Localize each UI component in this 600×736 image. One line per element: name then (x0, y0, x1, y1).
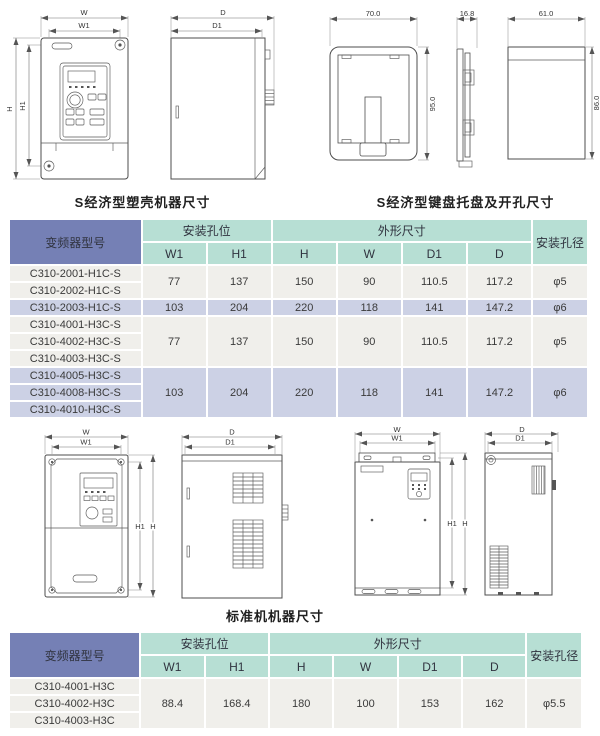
dim-label-h: H (150, 522, 155, 531)
s-side-view-drawing: D D1 (166, 6, 284, 188)
std-large-side-view-drawing: D D1 (476, 428, 600, 606)
dim-label-cutout-width: 61.0 (539, 9, 554, 18)
model-cell: C310-4001-H3C (10, 679, 139, 694)
dimension-value-cell: 100 (334, 679, 396, 728)
model-cell: C310-4003-H3C (10, 713, 139, 728)
model-cell: C310-2002-H1C-S (10, 283, 141, 298)
tray-front-drawing: 70.0 95.0 (316, 6, 442, 182)
dimension-value-cell: 110.5 (403, 266, 466, 298)
dimension-value-cell: 168.4 (206, 679, 268, 728)
header-row-1: 变频器型号安装孔位外形尺寸安装孔径 (10, 633, 581, 654)
dimension-value-cell: 141 (403, 368, 466, 417)
model-cell: C310-4008-H3C-S (10, 385, 141, 400)
model-cell: C310-2001-H1C-S (10, 266, 141, 281)
dimension-value-cell: 118 (338, 300, 401, 315)
dim-label-d: D (220, 8, 226, 17)
header-sub-col-d1: D1 (399, 656, 461, 677)
model-cell: C310-4005-H3C-S (10, 368, 141, 383)
dimension-value-cell: φ5.5 (527, 679, 581, 728)
caption-s-plastic-machine: S经济型塑壳机器尺寸 (35, 192, 250, 211)
header-sub-col-h: H (270, 656, 332, 677)
header-sub-col-w: W (338, 243, 401, 264)
header-sub-col-d: D (463, 656, 525, 677)
dimension-value-cell: 147.2 (468, 368, 531, 417)
dim-label-d1: D1 (515, 434, 525, 443)
header-row-1: 变频器型号安装孔位外形尺寸安装孔径 (10, 220, 587, 241)
dimension-value-cell: 204 (208, 368, 271, 417)
header-model: 变频器型号 (10, 220, 141, 264)
dim-label-tray-width: 70.0 (366, 9, 381, 18)
dim-label-w1: W1 (391, 434, 402, 443)
tray-side-drawing: 16.8 (446, 6, 494, 182)
potentiometer-knob (282, 505, 288, 520)
table-row: C310-4001-H3C88.4168.4180100153162φ5.5 (10, 679, 581, 694)
dim-label-d1: D1 (212, 21, 222, 30)
dim-label-h1: H1 (135, 522, 145, 531)
model-cell: C310-4003-H3C-S (10, 351, 141, 366)
s-front-view-drawing: W W1 H H1 (6, 6, 138, 188)
model-cell: C310-4002-H3C (10, 696, 139, 711)
dimension-value-cell: φ5 (533, 317, 587, 366)
s-series-dimensions-table: 变频器型号安装孔位外形尺寸安装孔径W1H1HWD1DC310-2001-H1C-… (8, 218, 589, 419)
tray-cutout-drawing: 61.0 86.0 (498, 6, 600, 182)
dim-label-tray-depth: 16.8 (460, 9, 475, 18)
header-hole-diameter: 安装孔径 (533, 220, 587, 264)
caption-s-keypad-tray: S经济型键盘托盘及开孔尺寸 (348, 192, 583, 211)
table-row: C310-2001-H1C-S7713715090110.5117.2φ5 (10, 266, 587, 281)
dimension-value-cell: 137 (208, 317, 271, 366)
table-row: C310-4005-H3C-S103204220118141147.2φ6 (10, 368, 587, 383)
dimension-value-cell: 150 (273, 317, 336, 366)
dim-label-h1: H1 (447, 519, 457, 528)
header-outline-size: 外形尺寸 (273, 220, 531, 241)
dimension-value-cell: 153 (399, 679, 461, 728)
dimension-value-cell: 103 (143, 300, 206, 315)
header-model: 变频器型号 (10, 633, 139, 677)
model-cell: C310-4002-H3C-S (10, 334, 141, 349)
dim-label-tray-height: 95.0 (428, 97, 437, 112)
header-sub-col-w1: W1 (141, 656, 203, 677)
dim-label-d1: D1 (225, 438, 235, 447)
dimension-value-cell: 88.4 (141, 679, 203, 728)
side-connector (552, 480, 556, 490)
header-sub-col-h: H (273, 243, 336, 264)
header-sub-col-h1: H1 (206, 656, 268, 677)
table-row: C310-2003-H1C-S103204220118141147.2φ6 (10, 300, 587, 315)
dimension-value-cell: 117.2 (468, 266, 531, 298)
dimension-value-cell: 141 (403, 300, 466, 315)
potentiometer-knob (265, 90, 274, 105)
caption-standard-machine: 标准机机器尺寸 (125, 606, 425, 625)
dimension-value-cell: φ6 (533, 368, 587, 417)
mounting-bar (359, 453, 435, 462)
dim-label-cutout-height: 86.0 (592, 96, 600, 111)
dimension-value-cell: 90 (338, 317, 401, 366)
model-cell: C310-2003-H1C-S (10, 300, 141, 315)
header-sub-col-h1: H1 (208, 243, 271, 264)
header-mounting-holes: 安装孔位 (141, 633, 268, 654)
manual-page: W W1 H H1 (0, 0, 600, 736)
dimension-value-cell: 150 (273, 266, 336, 298)
header-sub-col-w: W (334, 656, 396, 677)
header-hole-diameter: 安装孔径 (527, 633, 581, 677)
std-side-view-drawing: D D1 (174, 428, 296, 606)
dimension-value-cell: 220 (273, 300, 336, 315)
dim-label-h1: H1 (18, 101, 27, 111)
dim-label-w1: W1 (78, 21, 89, 30)
header-mounting-holes: 安装孔位 (143, 220, 271, 241)
std-large-front-view-drawing: W W1 H1 H (338, 428, 468, 606)
s-series-dimensions-table-wrap: 变频器型号安装孔位外形尺寸安装孔径W1H1HWD1DC310-2001-H1C-… (8, 218, 589, 419)
dimension-value-cell: 118 (338, 368, 401, 417)
dimension-value-cell: 77 (143, 266, 206, 298)
header-sub-col-w1: W1 (143, 243, 206, 264)
dim-label-d: D (229, 428, 235, 437)
dimension-value-cell: 117.2 (468, 317, 531, 366)
dim-label-w1: W1 (80, 438, 91, 447)
standard-dimensions-table-wrap: 变频器型号安装孔位外形尺寸安装孔径W1H1HWD1DC310-4001-H3C8… (8, 631, 583, 730)
standard-dimensions-table: 变频器型号安装孔位外形尺寸安装孔径W1H1HWD1DC310-4001-H3C8… (8, 631, 583, 730)
dimension-value-cell: 137 (208, 266, 271, 298)
dimension-value-cell: 147.2 (468, 300, 531, 315)
model-cell: C310-4010-H3C-S (10, 402, 141, 417)
dim-label-h: H (5, 106, 14, 111)
dimension-value-cell: 180 (270, 679, 332, 728)
dimension-value-cell: 220 (273, 368, 336, 417)
dim-label-h: H (462, 519, 467, 528)
dimension-value-cell: 103 (143, 368, 206, 417)
dimension-value-cell: 204 (208, 300, 271, 315)
dimension-value-cell: φ5 (533, 266, 587, 298)
dimension-value-cell: φ6 (533, 300, 587, 315)
header-outline-size: 外形尺寸 (270, 633, 526, 654)
dim-label-w: W (80, 8, 88, 17)
model-cell: C310-4001-H3C-S (10, 317, 141, 332)
dimension-value-cell: 162 (463, 679, 525, 728)
table-row: C310-4001-H3C-S7713715090110.5117.2φ5 (10, 317, 587, 332)
dimension-value-cell: 110.5 (403, 317, 466, 366)
std-front-view-drawing: W W1 H1 H (18, 428, 160, 606)
header-sub-col-d1: D1 (403, 243, 466, 264)
vent-grille-bottom (490, 546, 508, 588)
header-sub-col-d: D (468, 243, 531, 264)
dim-label-w: W (82, 428, 90, 437)
dimension-value-cell: 90 (338, 266, 401, 298)
dimension-value-cell: 77 (143, 317, 206, 366)
